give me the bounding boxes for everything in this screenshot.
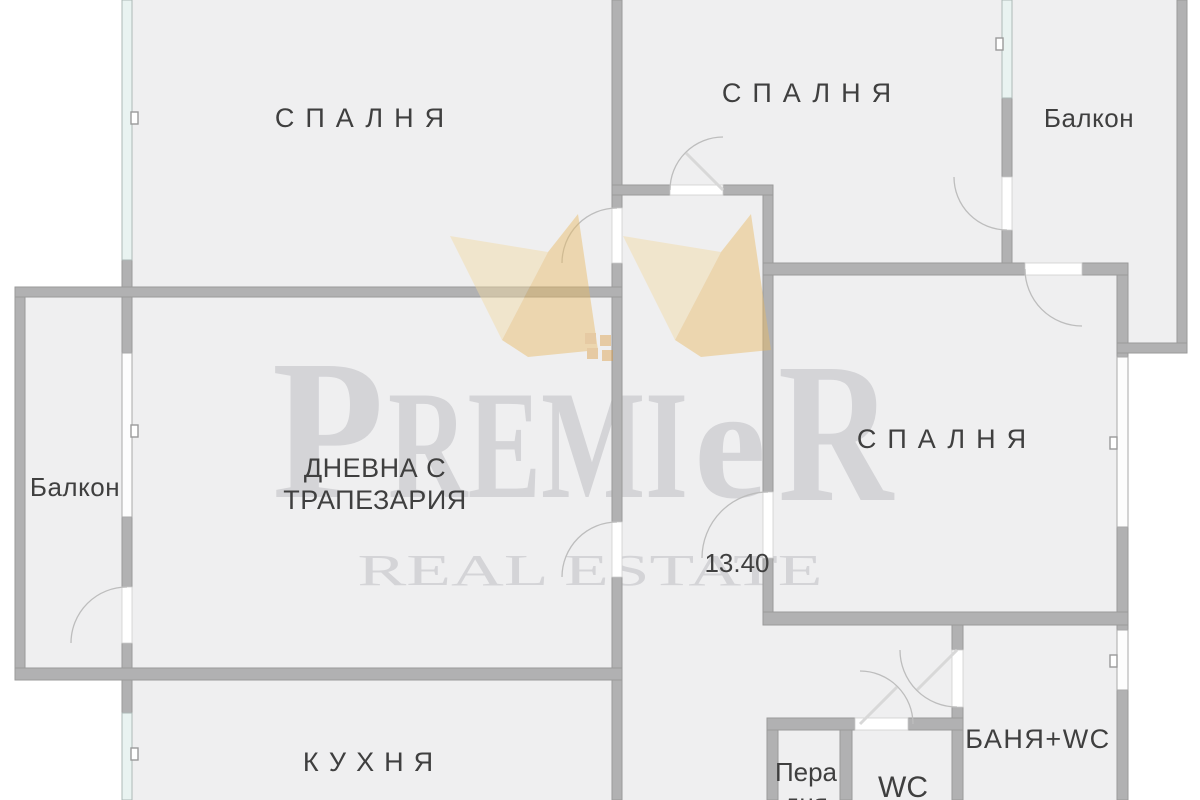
floor-plan: P REMI e R REAL ESTATE СПАЛНЯ СПАЛНЯ СПА… bbox=[0, 0, 1200, 800]
wall-segment bbox=[612, 577, 622, 800]
wall-segment bbox=[1002, 98, 1012, 177]
door-opening bbox=[1025, 263, 1082, 275]
wall-segment bbox=[1082, 263, 1128, 275]
room-label-bedroom-top-middle: СПАЛНЯ bbox=[722, 78, 902, 108]
window bbox=[122, 0, 132, 260]
logo-window-square bbox=[602, 350, 613, 361]
door-opening bbox=[612, 522, 622, 577]
wall-segment bbox=[122, 517, 132, 587]
wall-segment bbox=[763, 263, 1025, 275]
floor-plan-canvas: P REMI e R REAL ESTATE СПАЛНЯ СПАЛНЯ СПА… bbox=[0, 0, 1200, 800]
room-label-bedroom-top-left: СПАЛНЯ bbox=[275, 103, 455, 133]
wall-segment bbox=[612, 185, 670, 195]
logo-window-square bbox=[587, 348, 598, 359]
room-label-kitchen: КУХНЯ bbox=[303, 747, 443, 777]
wall-segment bbox=[723, 185, 773, 195]
door-opening bbox=[952, 650, 963, 707]
wall-segment bbox=[612, 0, 622, 208]
wall-segment bbox=[122, 260, 132, 353]
wall-segment bbox=[1117, 690, 1128, 800]
door-opening bbox=[612, 208, 622, 263]
window-handle bbox=[131, 112, 138, 124]
window-handle bbox=[131, 425, 138, 437]
room-label-living-dining-line1: ДНЕВНА С bbox=[304, 453, 446, 483]
window-handle bbox=[996, 38, 1003, 50]
room-area-value: 13.40 bbox=[704, 548, 769, 578]
wall-segment bbox=[1177, 0, 1187, 353]
window bbox=[1117, 630, 1128, 690]
door-opening bbox=[670, 185, 723, 195]
window-handle bbox=[1110, 655, 1117, 667]
logo-window-square bbox=[600, 335, 611, 346]
balcony-top-right-floor bbox=[1002, 0, 1187, 353]
room-label-wc: WC bbox=[878, 771, 928, 800]
door-opening bbox=[122, 587, 132, 643]
door-opening bbox=[1002, 177, 1012, 230]
room-label-balcony-left: Балкон bbox=[30, 472, 120, 502]
window-handle bbox=[131, 748, 138, 760]
logo-window-square bbox=[585, 333, 596, 344]
wall-segment bbox=[767, 718, 855, 730]
room-label-balcony-top-right: Балкон bbox=[1044, 103, 1134, 133]
room-label-laundry-line1: Пера bbox=[775, 757, 838, 787]
watermark-brand-letter-e: e bbox=[694, 354, 766, 532]
room-label-living-dining-line2: ТРАПЕЗАРИЯ bbox=[283, 485, 466, 515]
room-label-bedroom-right: СПАЛНЯ bbox=[857, 424, 1037, 454]
wall-segment bbox=[15, 287, 25, 678]
window bbox=[1117, 357, 1128, 527]
wall-segment bbox=[612, 263, 622, 522]
room-label-laundry-line2: дня bbox=[784, 788, 828, 800]
wall-segment bbox=[1117, 343, 1187, 353]
wall-segment bbox=[15, 668, 622, 680]
window-handle bbox=[1110, 437, 1117, 449]
room-label-bath-wc: БАНЯ+WC bbox=[965, 724, 1110, 754]
wall-segment bbox=[908, 718, 963, 730]
wall-segment bbox=[763, 612, 1128, 625]
